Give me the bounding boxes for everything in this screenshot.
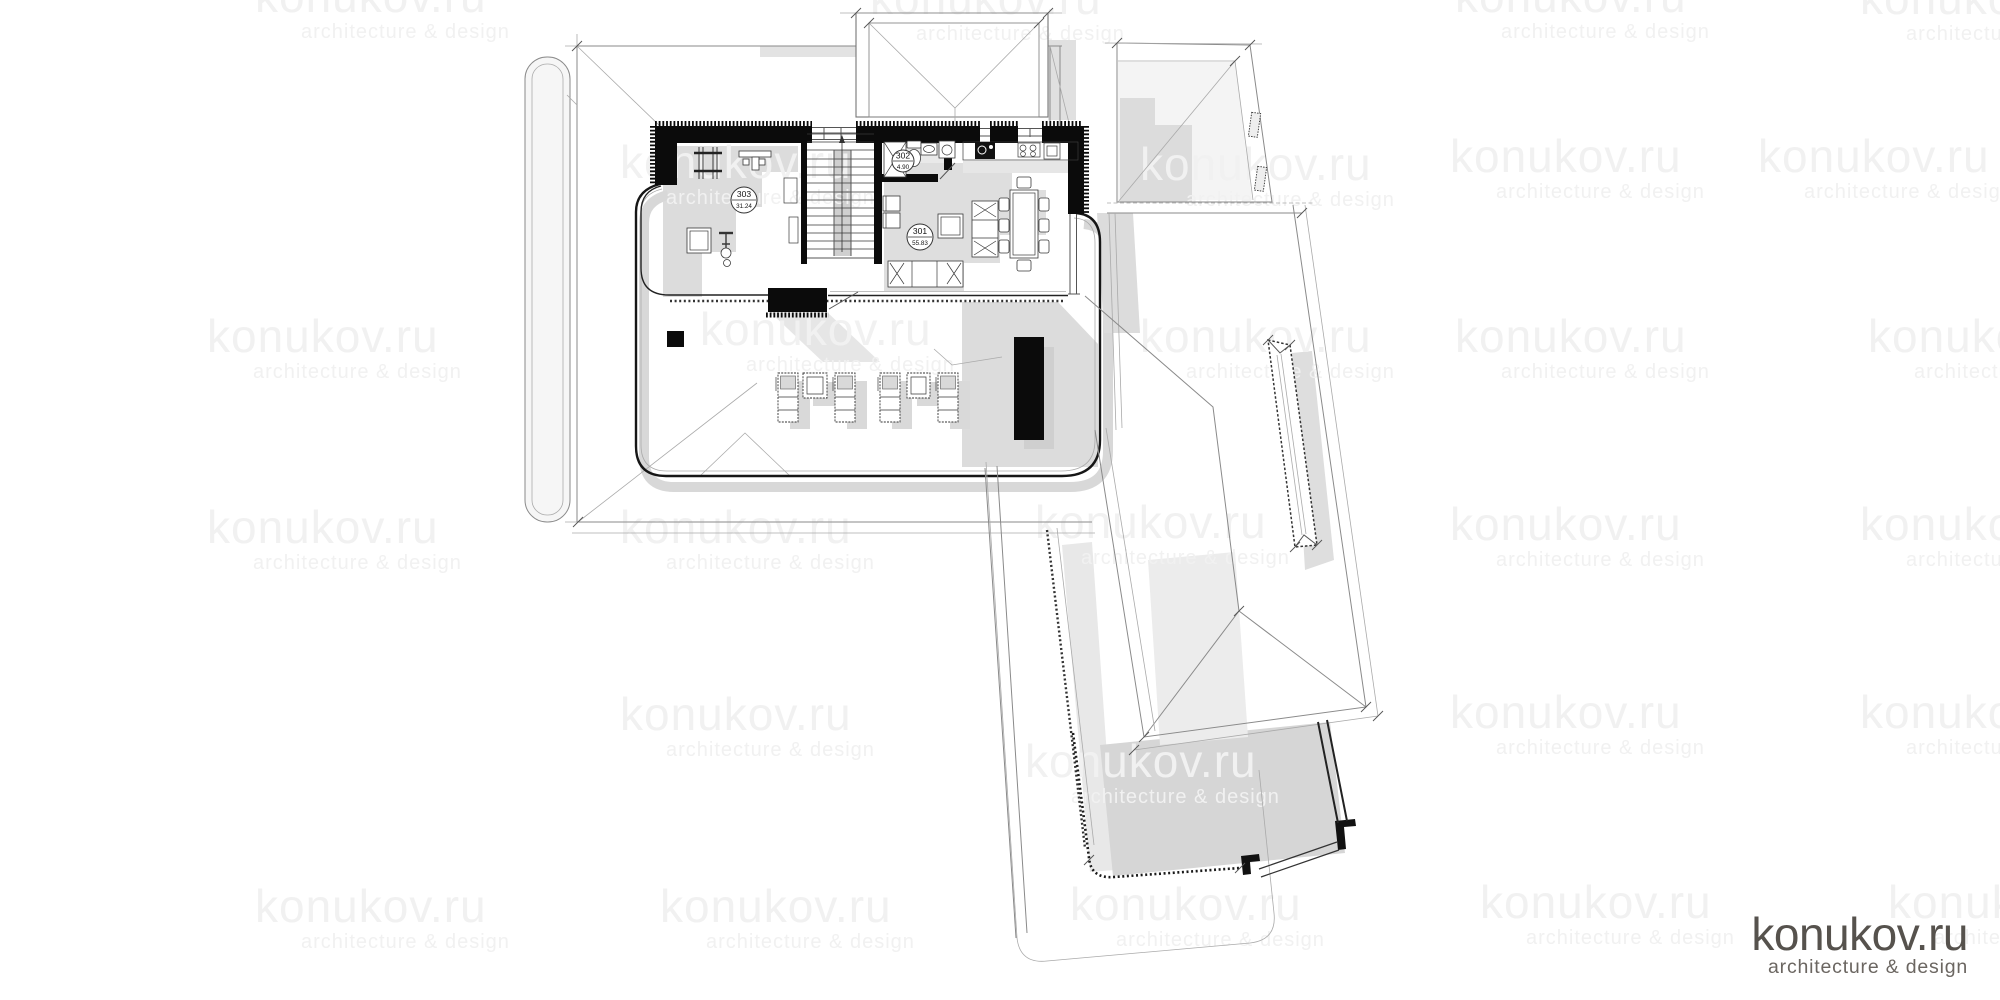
watermark-subtitle: architecture & design <box>1071 786 1280 808</box>
watermark-title: konukov.ru <box>1450 686 1682 738</box>
watermark-title: konukov.ru <box>1025 735 1257 787</box>
chimney <box>1014 337 1044 440</box>
watermark-subtitle: architecture & design <box>1496 737 1705 759</box>
watermark-subtitle: architecture & design <box>301 931 510 953</box>
watermark-title: konukov.ru <box>1140 310 1372 362</box>
watermark-title: konukov.ru <box>1070 878 1302 930</box>
watermark-title: konukov.ru <box>1860 0 2000 24</box>
watermark-title: konukov.ru <box>1455 0 1687 22</box>
watermark-subtitle: architecture & design <box>301 21 510 43</box>
watermark-subtitle: architecture & design <box>706 931 915 953</box>
room-number: 301 <box>913 226 927 236</box>
watermark-subtitle: architecture & design <box>666 739 875 761</box>
watermark-subtitle: architecture & design <box>1914 361 2000 383</box>
watermark-title: konukov.ru <box>1455 310 1687 362</box>
architectural-site-plan: konukov.ruarchitecture & designkonukov.r… <box>0 0 2000 1000</box>
watermark-title: konukov.ru <box>1450 498 1682 550</box>
watermark-title: konukov.ru <box>1758 130 1990 182</box>
watermark-subtitle: architecture & design <box>1906 549 2000 571</box>
cabinet <box>687 228 711 253</box>
watermark-title: konukov.ru <box>1868 310 2000 362</box>
watermark-subtitle: architecture & design <box>1906 737 2000 759</box>
watermark-subtitle: architecture & design <box>1501 21 1710 43</box>
entrance-wall-stub <box>768 288 827 312</box>
watermark-title: konukov.ru <box>620 136 852 188</box>
room-label-301: 301 55.83 <box>907 224 933 250</box>
watermark-subtitle: architecture & design <box>1496 181 1705 203</box>
watermark-subtitle: architecture & design <box>1501 361 1710 383</box>
watermark-title: konukov.ru <box>660 880 892 932</box>
watermark-subtitle: architecture & design <box>253 361 462 383</box>
coffee-table <box>938 214 963 238</box>
watermark-title: konukov.ru <box>255 0 487 22</box>
fills-layer <box>0 0 2000 1000</box>
watermark-title: konukov.ru <box>620 501 852 553</box>
logo-subtitle: architecture & design <box>1768 956 1968 978</box>
watermark-subtitle: architecture & design <box>1526 927 1735 949</box>
watermark-title: konukov.ru <box>207 501 439 553</box>
watermark-subtitle: architecture & design <box>666 552 875 574</box>
room-label-302: 302 4.90 <box>892 150 914 172</box>
watermark-subtitle: architecture & design <box>1906 23 2000 45</box>
watermark-title: konukov.ru <box>1860 498 2000 550</box>
watermark-subtitle: architecture & design <box>1804 181 2000 203</box>
logo: konukov.ru architecture & design <box>1751 908 1968 978</box>
washing-machine <box>939 141 955 158</box>
watermark-subtitle: architecture & design <box>1186 189 1395 211</box>
toilet <box>907 141 921 148</box>
watermark-subtitle: architecture & design <box>1081 547 1290 569</box>
room-number: 303 <box>737 189 751 199</box>
watermark-title: konukov.ru <box>207 310 439 362</box>
watermark-title: konukov.ru <box>255 880 487 932</box>
watermark-subtitle: architecture & design <box>253 552 462 574</box>
watermark-title: konukov.ru <box>620 688 852 740</box>
watermark-subtitle: architecture & design <box>1116 929 1325 951</box>
watermark-title: konukov.ru <box>1860 686 2000 738</box>
room-area: 4.90 <box>897 164 910 171</box>
room-area: 31.24 <box>736 203 752 210</box>
sofa-2 <box>972 201 998 257</box>
page-background <box>0 0 2000 1000</box>
logo-title: konukov.ru <box>1751 908 1968 960</box>
watermark-title: konukov.ru <box>870 0 1102 24</box>
watermark-subtitle: architecture & design <box>1496 549 1705 571</box>
watermark-title: konukov.ru <box>1480 876 1712 928</box>
sofa <box>888 261 963 287</box>
room-number: 302 <box>896 151 910 161</box>
watermark-title: konukov.ru <box>1450 130 1682 182</box>
watermark-subtitle: architecture & design <box>666 187 875 209</box>
room-label-303: 303 31.24 <box>731 187 757 213</box>
room-area: 55.83 <box>912 240 928 247</box>
